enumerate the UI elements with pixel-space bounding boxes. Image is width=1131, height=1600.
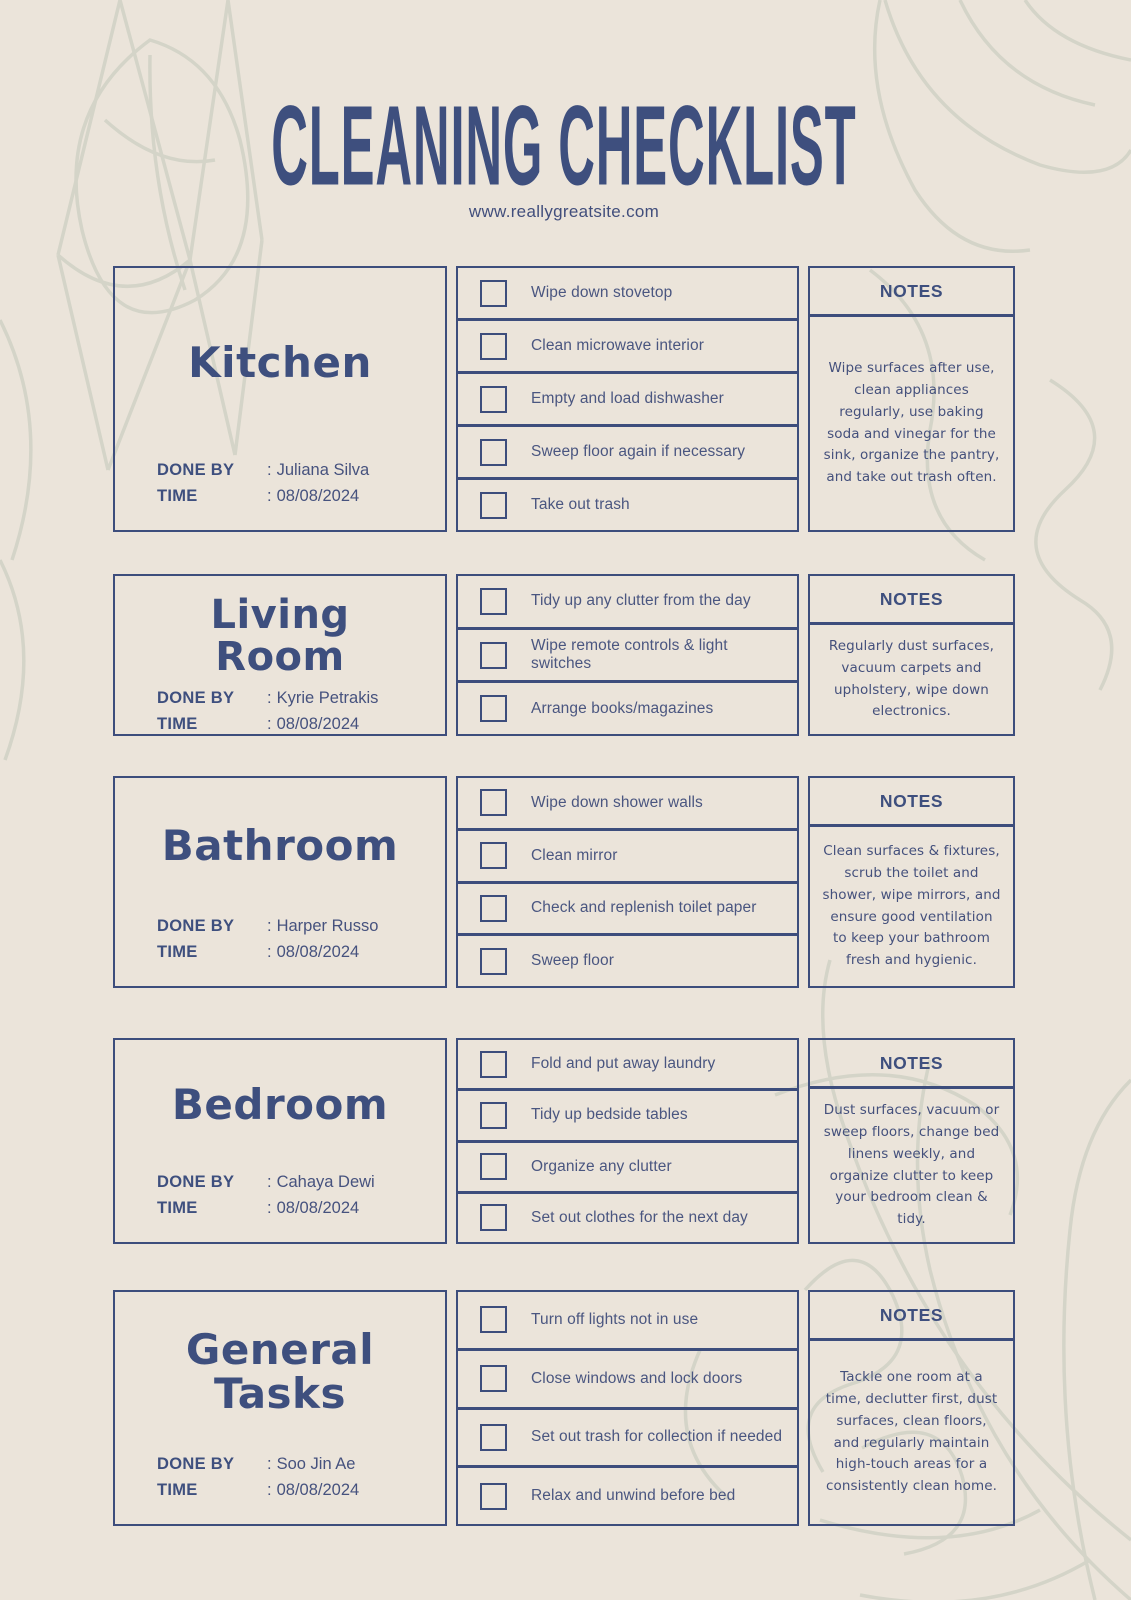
- task-label: Organize any clutter: [531, 1158, 678, 1176]
- task-checkbox[interactable]: [480, 1424, 507, 1451]
- time-value: :08/08/2024: [267, 1199, 359, 1218]
- task-label: Wipe down shower walls: [531, 794, 709, 812]
- task-label: Relax and unwind before bed: [531, 1487, 741, 1505]
- tasks-column: Tidy up any clutter from the day Wipe re…: [456, 574, 799, 736]
- room-info-box: Bathroom DONE BY :Harper Russo TIME :08/…: [113, 776, 447, 988]
- tasks-column: Wipe down stovetop Clean microwave inter…: [456, 266, 799, 532]
- tasks-column: Turn off lights not in use Close windows…: [456, 1290, 799, 1526]
- task-row: Tidy up any clutter from the day: [458, 576, 797, 627]
- done-by-label: DONE BY: [157, 917, 267, 936]
- task-row: Empty and load dishwasher: [458, 371, 797, 424]
- task-checkbox[interactable]: [480, 642, 507, 669]
- room-meta: DONE BY :Kyrie Petrakis TIME :08/08/2024: [127, 682, 433, 734]
- task-checkbox[interactable]: [480, 1365, 507, 1392]
- notes-text: Tackle one room at a time, declutter fir…: [810, 1341, 1013, 1524]
- done-by-label: DONE BY: [157, 1173, 267, 1192]
- time-value: :08/08/2024: [267, 487, 359, 506]
- done-by-label: DONE BY: [157, 689, 267, 708]
- room-info-box: Bedroom DONE BY :Cahaya Dewi TIME :08/08…: [113, 1038, 447, 1244]
- notes-header: NOTES: [810, 778, 1013, 827]
- time-value: :08/08/2024: [267, 1481, 359, 1500]
- room-name: Bedroom: [127, 1054, 433, 1166]
- done-by-value: :Kyrie Petrakis: [267, 689, 378, 708]
- task-checkbox[interactable]: [480, 386, 507, 413]
- task-label: Wipe down stovetop: [531, 284, 678, 302]
- task-checkbox[interactable]: [480, 695, 507, 722]
- task-label: Close windows and lock doors: [531, 1370, 748, 1388]
- task-label: Clean mirror: [531, 847, 623, 865]
- tasks-column: Wipe down shower walls Clean mirror Chec…: [456, 776, 799, 988]
- task-row: Check and replenish toilet paper: [458, 881, 797, 934]
- task-label: Wipe remote controls & light switches: [531, 637, 797, 673]
- page-title: CLEANING CHECKLIST: [271, 92, 856, 205]
- notes-header: NOTES: [810, 576, 1013, 625]
- task-label: Sweep floor again if necessary: [531, 443, 751, 461]
- task-label: Tidy up bedside tables: [531, 1106, 694, 1124]
- task-row: Wipe down shower walls: [458, 778, 797, 828]
- room-name: General Tasks: [130, 1306, 430, 1448]
- room-info-box: Kitchen DONE BY :Juliana Silva TIME :08/…: [113, 266, 447, 532]
- task-row: Close windows and lock doors: [458, 1348, 797, 1407]
- section-bathroom: Bathroom DONE BY :Harper Russo TIME :08/…: [113, 776, 1015, 988]
- time-label: TIME: [157, 943, 267, 962]
- task-checkbox[interactable]: [480, 842, 507, 869]
- notes-header: NOTES: [810, 1292, 1013, 1341]
- task-row: Arrange books/magazines: [458, 680, 797, 734]
- task-label: Check and replenish toilet paper: [531, 899, 763, 917]
- section-living-room: Living Room DONE BY :Kyrie Petrakis TIME…: [113, 574, 1015, 736]
- task-label: Take out trash: [531, 496, 636, 514]
- task-row: Relax and unwind before bed: [458, 1465, 797, 1524]
- task-checkbox[interactable]: [480, 1051, 507, 1078]
- room-name: Kitchen: [127, 282, 433, 454]
- task-row: Organize any clutter: [458, 1140, 797, 1191]
- task-label: Empty and load dishwasher: [531, 390, 730, 408]
- notes-text: Regularly dust surfaces, vacuum carpets …: [810, 625, 1013, 734]
- notes-column: NOTES Tackle one room at a time, declutt…: [808, 1290, 1015, 1526]
- notes-header: NOTES: [810, 1040, 1013, 1089]
- task-checkbox[interactable]: [480, 280, 507, 307]
- section-bedroom: Bedroom DONE BY :Cahaya Dewi TIME :08/08…: [113, 1038, 1015, 1244]
- notes-text: Clean surfaces & fixtures, scrub the toi…: [810, 827, 1013, 986]
- task-checkbox[interactable]: [480, 588, 507, 615]
- task-checkbox[interactable]: [480, 948, 507, 975]
- done-by-value: :Juliana Silva: [267, 461, 369, 480]
- task-row: Wipe down stovetop: [458, 268, 797, 318]
- task-row: Take out trash: [458, 477, 797, 530]
- notes-text: Wipe surfaces after use, clean appliance…: [810, 317, 1013, 530]
- cleaning-checklist-page: CLEANING CHECKLIST www.reallygreatsite.c…: [113, 0, 1015, 1526]
- section-kitchen: Kitchen DONE BY :Juliana Silva TIME :08/…: [113, 266, 1015, 532]
- time-value: :08/08/2024: [267, 715, 359, 734]
- done-by-value: :Soo Jin Ae: [267, 1455, 355, 1474]
- task-row: Sweep floor again if necessary: [458, 424, 797, 477]
- task-label: Arrange books/magazines: [531, 700, 719, 718]
- task-row: Fold and put away laundry: [458, 1040, 797, 1088]
- notes-column: NOTES Wipe surfaces after use, clean app…: [808, 266, 1015, 532]
- notes-header: NOTES: [810, 268, 1013, 317]
- notes-column: NOTES Clean surfaces & fixtures, scrub t…: [808, 776, 1015, 988]
- notes-column: NOTES Dust surfaces, vacuum or sweep flo…: [808, 1038, 1015, 1244]
- room-info-box: Living Room DONE BY :Kyrie Petrakis TIME…: [113, 574, 447, 736]
- task-label: Set out trash for collection if needed: [531, 1428, 788, 1446]
- task-row: Turn off lights not in use: [458, 1292, 797, 1348]
- section-general-tasks: General Tasks DONE BY :Soo Jin Ae TIME :…: [113, 1290, 1015, 1526]
- task-checkbox[interactable]: [480, 492, 507, 519]
- task-checkbox[interactable]: [480, 1204, 507, 1231]
- notes-text: Dust surfaces, vacuum or sweep floors, c…: [810, 1089, 1013, 1242]
- task-checkbox[interactable]: [480, 789, 507, 816]
- task-label: Fold and put away laundry: [531, 1055, 721, 1073]
- task-row: Clean microwave interior: [458, 318, 797, 371]
- room-meta: DONE BY :Harper Russo TIME :08/08/2024: [127, 910, 433, 962]
- time-label: TIME: [157, 1199, 267, 1218]
- done-by-value: :Harper Russo: [267, 917, 378, 936]
- task-label: Tidy up any clutter from the day: [531, 592, 757, 610]
- time-value: :08/08/2024: [267, 943, 359, 962]
- room-meta: DONE BY :Juliana Silva TIME :08/08/2024: [127, 454, 433, 506]
- task-row: Set out clothes for the next day: [458, 1191, 797, 1242]
- header: CLEANING CHECKLIST www.reallygreatsite.c…: [113, 0, 1015, 222]
- task-label: Sweep floor: [531, 952, 620, 970]
- notes-column: NOTES Regularly dust surfaces, vacuum ca…: [808, 574, 1015, 736]
- time-label: TIME: [157, 715, 267, 734]
- task-checkbox[interactable]: [480, 439, 507, 466]
- task-label: Turn off lights not in use: [531, 1311, 704, 1329]
- task-checkbox[interactable]: [480, 895, 507, 922]
- task-row: Wipe remote controls & light switches: [458, 627, 797, 681]
- task-checkbox[interactable]: [480, 1306, 507, 1333]
- done-by-value: :Cahaya Dewi: [267, 1173, 375, 1192]
- task-checkbox[interactable]: [480, 1483, 507, 1510]
- room-name: Bathroom: [127, 792, 433, 910]
- task-row: Sweep floor: [458, 933, 797, 986]
- room-meta: DONE BY :Cahaya Dewi TIME :08/08/2024: [127, 1166, 433, 1218]
- time-label: TIME: [157, 1481, 267, 1500]
- task-checkbox[interactable]: [480, 1153, 507, 1180]
- done-by-label: DONE BY: [157, 1455, 267, 1474]
- task-checkbox[interactable]: [480, 1102, 507, 1129]
- room-meta: DONE BY :Soo Jin Ae TIME :08/08/2024: [127, 1448, 433, 1500]
- room-name: Living Room: [127, 590, 433, 682]
- task-label: Clean microwave interior: [531, 337, 710, 355]
- task-row: Set out trash for collection if needed: [458, 1407, 797, 1466]
- tasks-column: Fold and put away laundry Tidy up bedsid…: [456, 1038, 799, 1244]
- room-info-box: General Tasks DONE BY :Soo Jin Ae TIME :…: [113, 1290, 447, 1526]
- task-row: Tidy up bedside tables: [458, 1088, 797, 1139]
- done-by-label: DONE BY: [157, 461, 267, 480]
- task-label: Set out clothes for the next day: [531, 1209, 754, 1227]
- time-label: TIME: [157, 487, 267, 506]
- task-checkbox[interactable]: [480, 333, 507, 360]
- task-row: Clean mirror: [458, 828, 797, 881]
